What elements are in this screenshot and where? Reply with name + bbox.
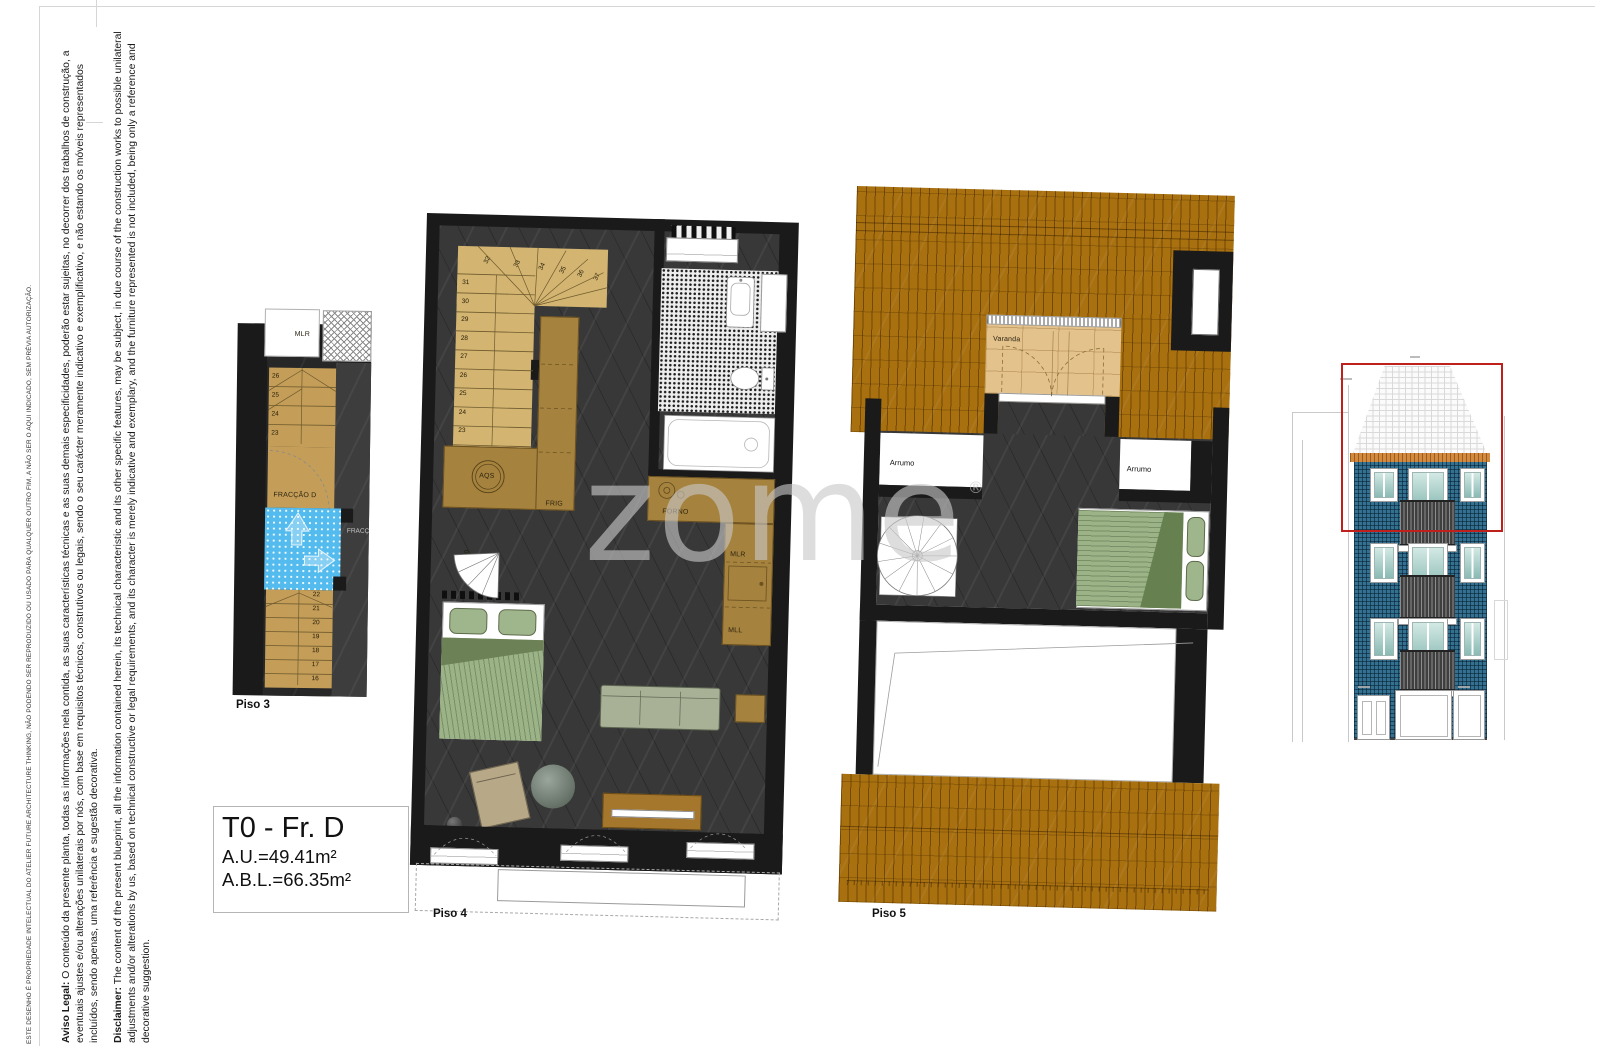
gross-area: A.B.L.=66.35m² <box>222 868 400 891</box>
dimension-mark <box>1410 356 1420 358</box>
door-panel <box>1362 701 1372 735</box>
facade-balcony-railing <box>1400 575 1455 618</box>
dimension-mark <box>1458 686 1470 688</box>
facade-window <box>1460 618 1485 660</box>
facade-window <box>1460 543 1485 583</box>
sheet-tick-vertical <box>96 0 97 27</box>
adjacent-building-line <box>1292 412 1293 742</box>
adjacent-building-line <box>1504 416 1505 740</box>
legal-notice-pt-text: O conteúdo da presente planta, todas as … <box>61 51 100 1043</box>
legal-notice-en-text: The content of the present blueprint, al… <box>113 31 152 1043</box>
storefront-opening <box>1395 690 1452 740</box>
piso3-linework <box>226 306 378 706</box>
legal-notice-pt-label: Aviso Legal: <box>61 982 72 1043</box>
piso4-title: Piso 4 <box>433 908 467 920</box>
storefront-frame <box>1400 695 1448 737</box>
floor-plan-piso3: MLR 26 25 24 23 FRACÇÃO D FRACÇ 22 21 20… <box>226 306 378 706</box>
title-block: T0 - Fr. D A.U.=49.41m² A.B.L.=66.35m² <box>213 806 409 913</box>
fraction-highlight-box <box>1341 363 1503 532</box>
useful-area: A.U.=49.41m² <box>222 845 400 868</box>
door-panel <box>1376 701 1386 735</box>
copyright-note: ESTE DESENHO É PROPRIEDADE INTELECTUAL D… <box>26 8 33 1044</box>
piso3-title: Piso 3 <box>236 699 270 711</box>
sheet-top-rule <box>39 6 1595 7</box>
facade-window <box>1370 618 1398 660</box>
dimension-mark <box>1358 686 1370 688</box>
legal-notice-en: Disclaimer: The content of the present b… <box>112 28 154 1043</box>
blueprint-sheet: ESTE DESENHO É PROPRIEDADE INTELECTUAL D… <box>0 0 1600 1062</box>
sheet-left-rule <box>39 6 40 1046</box>
adjacent-building-panel <box>1494 600 1508 660</box>
registered-mark-icon: ® <box>968 478 986 497</box>
legal-notice-en-label: Disclaimer: <box>113 987 124 1043</box>
zome-watermark: zome® <box>584 446 986 623</box>
facade-window <box>1370 543 1398 583</box>
facade-elevation <box>1290 350 1515 755</box>
adjacent-building-line <box>1302 440 1303 742</box>
legal-notice-pt: Aviso Legal: O conteúdo da presente plan… <box>60 28 102 1043</box>
storefront-opening <box>1453 690 1485 740</box>
entrance-door <box>1357 695 1390 740</box>
storefront-frame <box>1458 695 1481 737</box>
facade-balcony-railing <box>1400 650 1455 690</box>
watermark-text: zome <box>584 435 963 593</box>
unit-title: T0 - Fr. D <box>222 811 400 845</box>
piso5-title: Piso 5 <box>872 908 906 920</box>
